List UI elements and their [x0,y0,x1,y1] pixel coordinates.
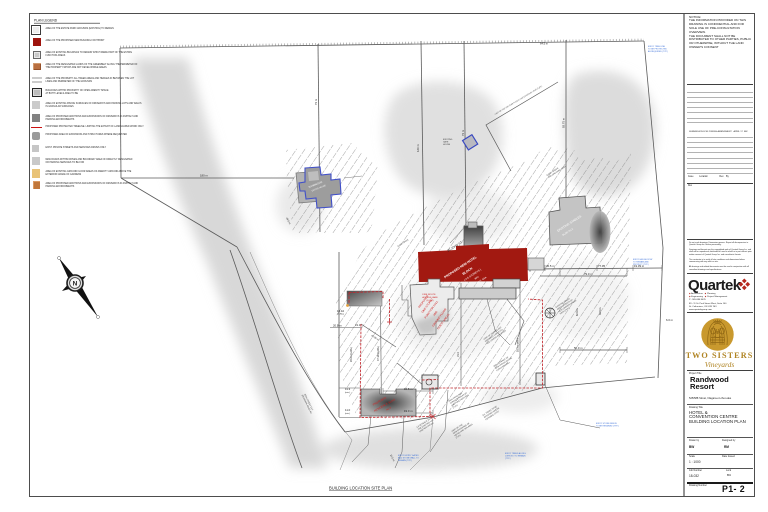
svg-text:126 m: 126 m [416,144,420,152]
svg-text:6.0 m: 6.0 m [666,318,674,322]
svg-text:EXIST. TREES ALONG: EXIST. TREES ALONG [505,452,526,455]
svg-text:77.05: 77.05 [598,264,605,268]
svg-text:180 m: 180 m [200,174,208,178]
svg-text:73 m: 73 m [461,129,465,136]
svg-text:LIMIT OF THE 100 YEAR FLOOD LI: LIMIT OF THE 100 YEAR FLOOD LINE CONTOUR… [494,84,544,115]
svg-text:AS REQUIRED (TYP.): AS REQUIRED (TYP.) [648,50,668,53]
svg-text:29.22 (m.Wa.): 29.22 (m.Wa.) [350,347,353,362]
svg-text:73 m: 73 m [314,98,318,105]
svg-text:15.3: 15.3 [457,352,460,357]
svg-text:TO BE RETAINED (TYP.): TO BE RETAINED (TYP.) [596,425,619,428]
svg-text:11.3: 11.3 [345,387,351,391]
svg-text:REMAIN (TYP.): REMAIN (TYP.) [398,459,412,462]
svg-text:16.5 m: 16.5 m [404,387,413,391]
svg-text:PROTECT (TYP.): PROTECT (TYP.) [633,264,649,266]
svg-text:38.5 m: 38.5 m [599,308,602,315]
svg-text:11.0: 11.0 [345,408,351,412]
svg-text:JOHN ST. TO REMAIN: JOHN ST. TO REMAIN [505,455,526,458]
svg-text:(TYP.): (TYP.) [505,458,511,460]
svg-text:82.6 m: 82.6 m [576,309,579,316]
svg-text:(min.): (min.) [345,392,350,394]
svg-text:50.0 m: 50.0 m [574,346,583,350]
svg-text:45.5 m: 45.5 m [546,264,555,268]
svg-text:20.5 m: 20.5 m [333,324,342,328]
svg-text:21.3: 21.3 [355,323,361,327]
svg-text:50.0 m (min.): 50.0 m (min.) [517,338,520,352]
svg-text:16.42: 16.42 [337,309,344,313]
svg-text:19.0 m: 19.0 m [404,409,413,413]
svg-text:N: N [73,280,78,287]
svg-text:ACCESS LANE: ACCESS LANE [422,296,438,299]
svg-text:HOUSE: HOUSE [443,144,451,146]
svg-text:64.5 m: 64.5 m [540,42,548,46]
svg-text:BUILDING LOCATION SITE PLAN: BUILDING LOCATION SITE PLAN [329,486,392,491]
svg-text:AND STONE WALL TO: AND STONE WALL TO [398,457,419,460]
svg-text:(6.0 m): (6.0 m) [427,300,434,302]
svg-text:93.75 m: 93.75 m [562,117,566,128]
svg-text:EXIST. ENTRY GATES: EXIST. ENTRY GATES [398,454,419,457]
svg-text:PLAN LEGEND: PLAN LEGEND [34,19,58,23]
svg-text:(m.Wa.): (m.Wa.) [337,314,344,316]
svg-text:(min.): (min.) [345,413,350,415]
svg-text:TO REMAIN AND: TO REMAIN AND [633,261,649,264]
svg-text:79.0 m: 79.0 m [584,272,593,276]
svg-text:FIRE ROUTE: FIRE ROUTE [422,294,436,296]
svg-text:77.18 (m.Wa.): 77.18 (m.Wa.) [377,346,380,361]
